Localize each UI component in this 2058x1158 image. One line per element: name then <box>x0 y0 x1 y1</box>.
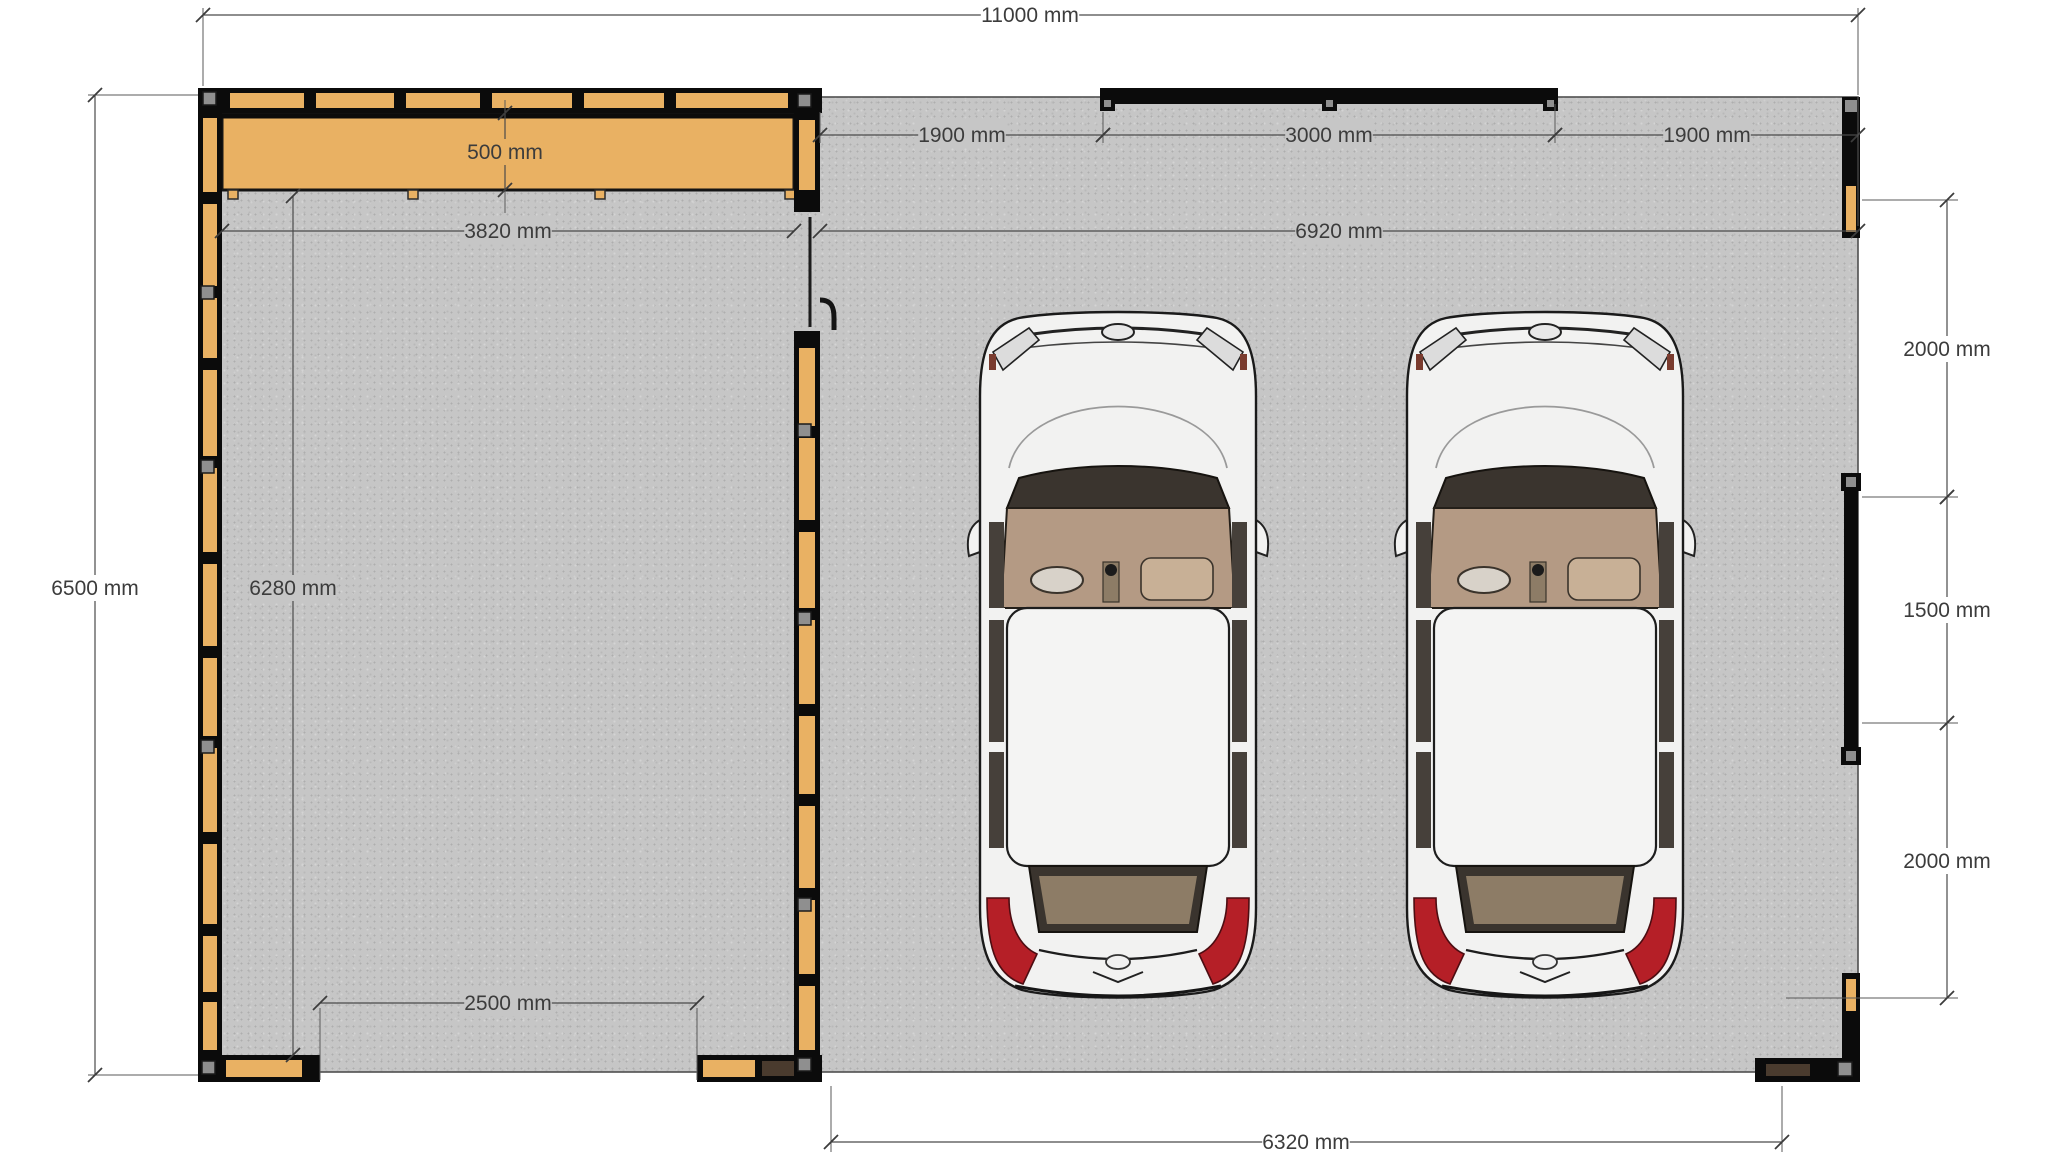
dimension-label: 1500 mm <box>1903 599 1991 622</box>
dimension-label: 2500 mm <box>464 992 552 1015</box>
dimension-right-span-top: 2000 mm <box>1862 193 1991 504</box>
dimension-label: 11000 mm <box>981 4 1079 27</box>
dimension-overall-width: 11000 mm <box>196 2 1865 95</box>
car-seat <box>1568 558 1640 600</box>
dimension-carport-bay-left: 1900 mm <box>813 112 1110 148</box>
middle-wall-upper <box>794 88 820 212</box>
dimension-label: 6500 mm <box>51 577 139 600</box>
dimension-carport-width: 6920 mm <box>813 97 1865 244</box>
plan-drawing: 11000 mm1900 mm3000 mm1900 mm3820 mm6920… <box>0 0 2058 1158</box>
dimension-garage-inner-height: 6280 mm <box>249 189 337 1062</box>
garage-left-wall <box>198 88 222 1082</box>
car-1 <box>968 312 1268 998</box>
dimension-label: 6320 mm <box>1262 1131 1350 1154</box>
brand-logo-icon <box>1529 324 1561 340</box>
car-seat <box>1141 558 1213 600</box>
dimension-label: 3000 mm <box>1285 124 1373 147</box>
car-2 <box>1395 312 1695 998</box>
floor-plan-canvas: 11000 mm1900 mm3000 mm1900 mm3820 mm6920… <box>0 0 2058 1158</box>
brand-logo-icon <box>1102 324 1134 340</box>
dimension-right-span-middle: 1500 mm <box>1862 490 1991 730</box>
steering-wheel-icon <box>1031 567 1083 593</box>
middle-wall-lower <box>794 331 820 1082</box>
dimension-label: 500 mm <box>467 141 543 164</box>
dimension-carport-bay-right: 1900 mm <box>1548 122 1865 148</box>
dimension-label: 6280 mm <box>249 577 337 600</box>
dimension-garage-inner-width: 3820 mm <box>215 218 801 244</box>
dimension-label: 3820 mm <box>464 220 552 243</box>
steering-wheel-icon <box>1458 567 1510 593</box>
brand-logo-icon <box>1533 955 1557 969</box>
dimension-label: 2000 mm <box>1903 850 1991 873</box>
dimension-carport-bottom-width: 6320 mm <box>824 1086 1789 1155</box>
dimension-overall-height: 6500 mm <box>51 88 198 1082</box>
dimension-right-span-bottom: 2000 mm <box>1786 716 1991 1005</box>
dimension-label: 1900 mm <box>918 124 1006 147</box>
dimension-label: 1900 mm <box>1663 124 1751 147</box>
dimension-label: 6920 mm <box>1295 220 1383 243</box>
dimension-garage-door-width: 2500 mm <box>313 990 704 1080</box>
dimension-label: 2000 mm <box>1903 338 1991 361</box>
middle-wall-door <box>794 196 834 347</box>
garage-bottom-wall-left <box>198 1055 320 1082</box>
brand-logo-icon <box>1106 955 1130 969</box>
door-handle-icon <box>820 300 834 330</box>
